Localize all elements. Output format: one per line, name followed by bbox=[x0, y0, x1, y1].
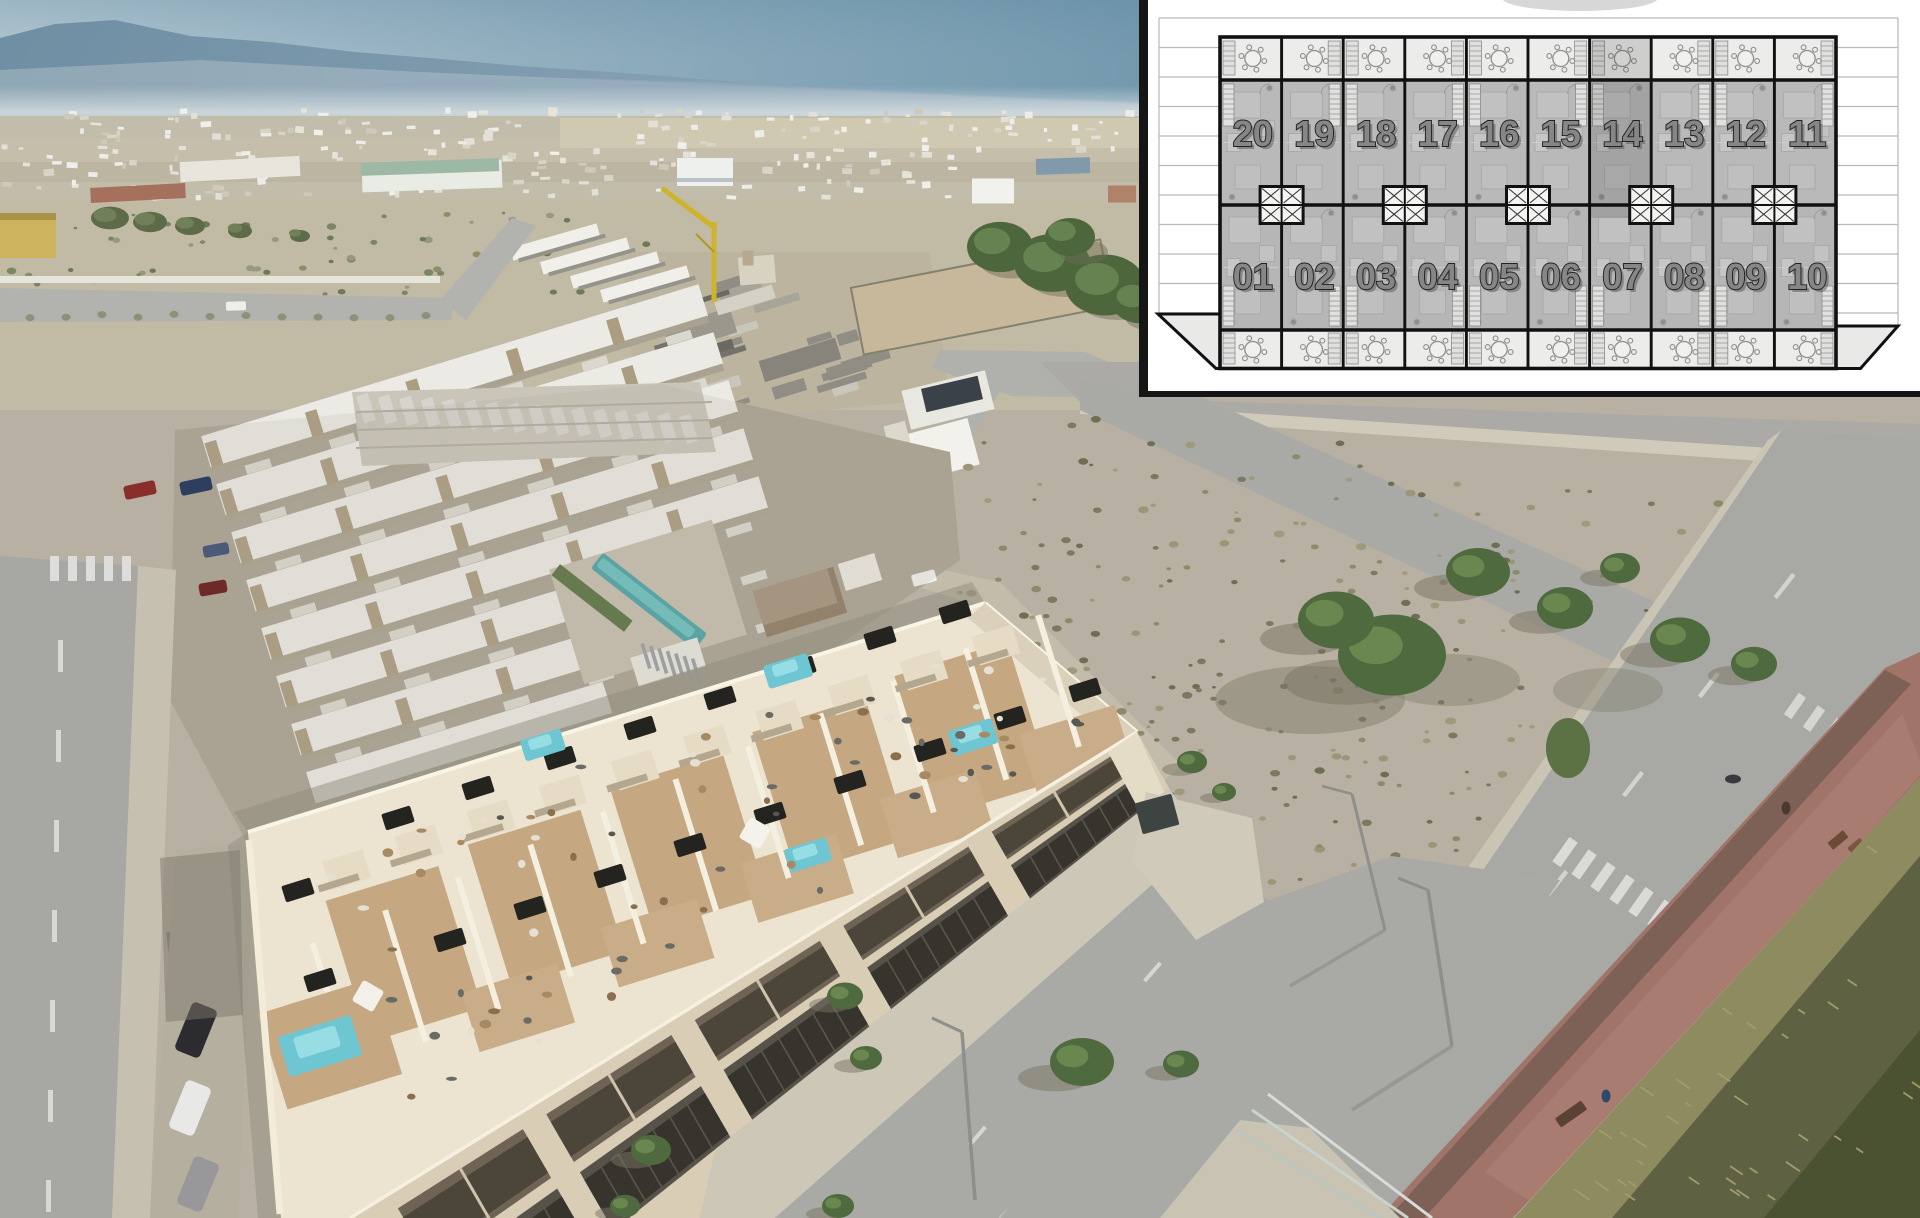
svg-text:07: 07 bbox=[1602, 256, 1642, 297]
svg-text:05: 05 bbox=[1479, 256, 1519, 297]
svg-text:17: 17 bbox=[1418, 113, 1458, 154]
svg-text:08: 08 bbox=[1664, 256, 1704, 297]
svg-text:09: 09 bbox=[1726, 256, 1766, 297]
svg-text:01: 01 bbox=[1233, 256, 1273, 297]
svg-text:11: 11 bbox=[1788, 113, 1826, 154]
svg-text:06: 06 bbox=[1541, 256, 1581, 297]
svg-text:14: 14 bbox=[1602, 113, 1642, 154]
svg-text:12: 12 bbox=[1726, 113, 1766, 154]
svg-text:20: 20 bbox=[1233, 113, 1273, 154]
svg-text:19: 19 bbox=[1294, 113, 1334, 154]
svg-text:10: 10 bbox=[1787, 256, 1827, 297]
svg-text:03: 03 bbox=[1356, 256, 1396, 297]
svg-text:15: 15 bbox=[1541, 113, 1581, 154]
svg-text:13: 13 bbox=[1664, 113, 1704, 154]
svg-text:02: 02 bbox=[1294, 256, 1334, 297]
svg-text:04: 04 bbox=[1418, 256, 1458, 297]
svg-text:16: 16 bbox=[1479, 113, 1519, 154]
svg-text:18: 18 bbox=[1356, 113, 1396, 154]
